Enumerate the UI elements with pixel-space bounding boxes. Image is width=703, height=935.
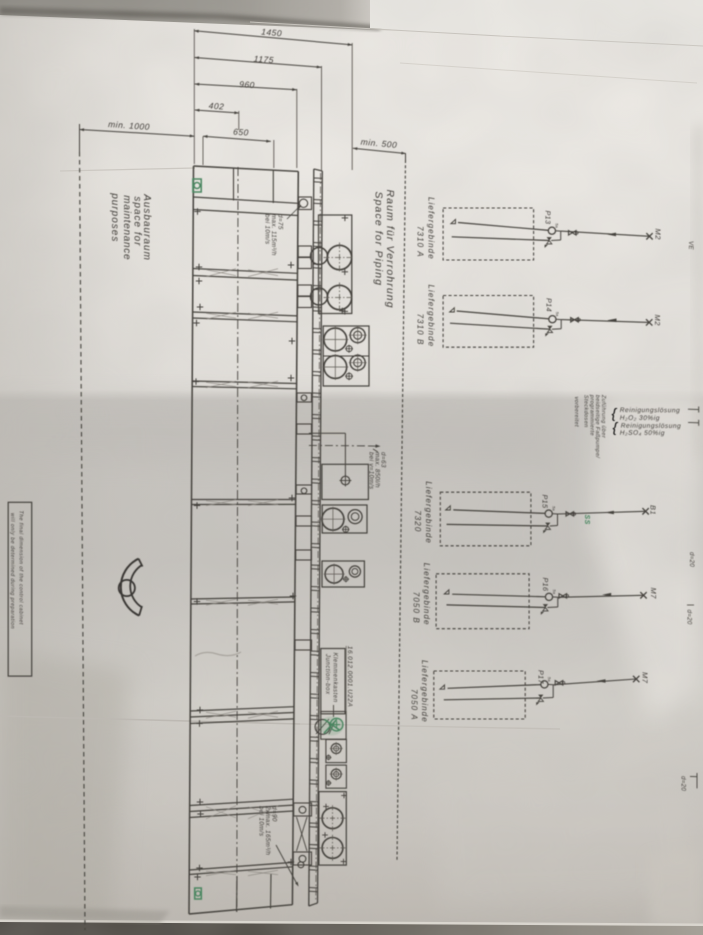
svg-text:Steckdosen: Steckdosen <box>583 395 589 428</box>
svg-text:vorbereitet: vorbereitet <box>573 397 579 427</box>
svg-text:5a: 5a <box>552 506 557 511</box>
svg-text:bei 10m/s: bei 10m/s <box>258 806 265 837</box>
svg-text:will only be determined during: will only be determined during preparati… <box>9 513 15 629</box>
svg-text:P14: P14 <box>545 298 554 312</box>
svg-text:Reinigungslösung: Reinigungslösung <box>620 407 680 414</box>
svg-text:Liefergebinde: Liefergebinde <box>424 481 433 544</box>
svg-text:Junction-box: Junction-box <box>324 653 330 695</box>
svg-text:B1: B1 <box>649 505 658 515</box>
svg-text:M2: M2 <box>653 315 662 327</box>
svg-text:d=20: d=20 <box>688 552 695 567</box>
svg-text:5a: 5a <box>555 223 560 228</box>
svg-text:Liefergebinde: Liefergebinde <box>420 660 429 723</box>
svg-text:1450: 1450 <box>261 27 283 39</box>
svg-text:5a: 5a <box>552 589 557 594</box>
svg-text:space for: space for <box>132 196 143 246</box>
svg-text:Liefergebinde: Liefergebinde <box>427 285 436 348</box>
svg-text:H₂O₂ 30%ig: H₂O₂ 30%ig <box>620 415 660 422</box>
svg-text:M2: M2 <box>653 229 662 241</box>
svg-text:16.012.0001.U22A: 16.012.0001.U22A <box>346 646 353 707</box>
svg-text:Liefergebinde: Liefergebinde <box>427 197 436 260</box>
svg-text:Space for Piping: Space for Piping <box>373 192 385 287</box>
svg-text:7050 B: 7050 B <box>412 592 421 624</box>
svg-text:7310 B: 7310 B <box>416 314 425 346</box>
svg-text:bei 10m/s: bei 10m/s <box>264 214 271 245</box>
svg-text:7310 A: 7310 A <box>416 226 425 258</box>
svg-text:d=20: d=20 <box>680 776 687 791</box>
svg-text:7050 A: 7050 A <box>410 689 419 721</box>
svg-text:960: 960 <box>239 79 255 90</box>
svg-text:bei v=10m/s: bei v=10m/s <box>368 452 375 490</box>
svg-text:5a: 5a <box>555 312 560 317</box>
svg-text:Raum für Verrohrung: Raum für Verrohrung <box>384 190 396 309</box>
svg-text:The final dimension of the co: The final dimension of the control cabin… <box>18 511 24 625</box>
svg-text:H₂SO₄ 50%ig: H₂SO₄ 50%ig <box>620 430 665 437</box>
svg-text:P16: P16 <box>541 578 550 592</box>
svg-text:7320: 7320 <box>413 510 422 532</box>
svg-text:402: 402 <box>208 101 224 112</box>
svg-text:1175: 1175 <box>253 54 274 66</box>
svg-text:VE: VE <box>687 241 694 250</box>
svg-text:M7: M7 <box>649 588 658 600</box>
svg-text:M7: M7 <box>641 672 650 684</box>
svg-text:Liefergebinde: Liefergebinde <box>422 563 431 626</box>
svg-text:SS: SS <box>583 515 590 525</box>
svg-text:maintenance: maintenance <box>121 195 132 260</box>
svg-text:5a: 5a <box>547 677 552 682</box>
svg-text:Klemmenkasten: Klemmenkasten <box>332 653 338 703</box>
svg-text:d=20: d=20 <box>686 610 693 625</box>
svg-text:P13: P13 <box>544 211 553 225</box>
svg-text:P15: P15 <box>541 495 550 509</box>
svg-text:purposes: purposes <box>109 192 120 242</box>
svg-text:650: 650 <box>233 127 249 138</box>
svg-text:P17: P17 <box>537 670 546 684</box>
